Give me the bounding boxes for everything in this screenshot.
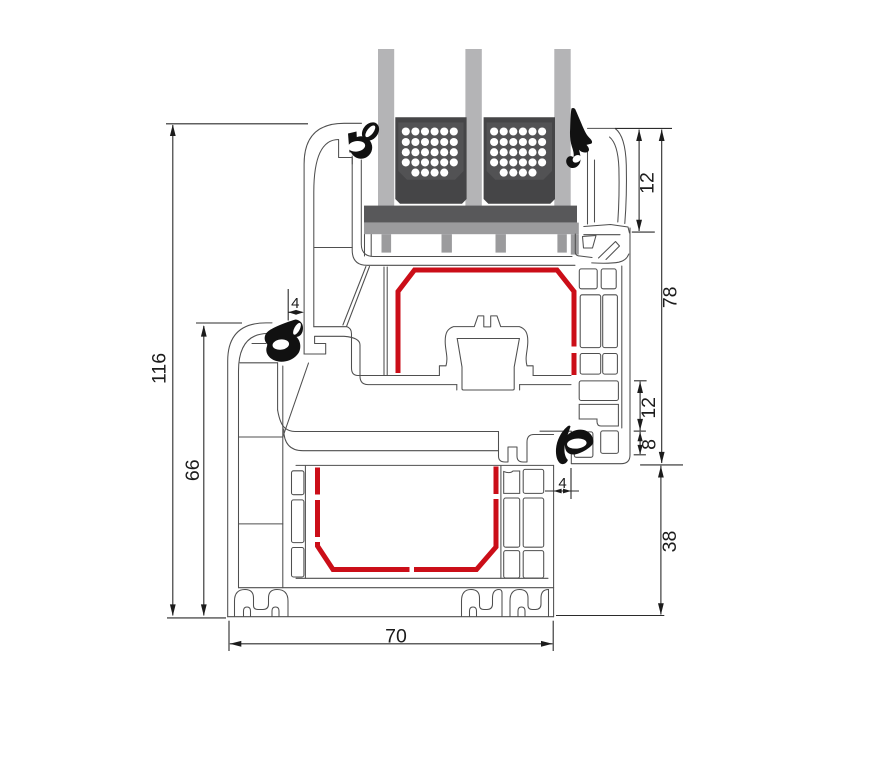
svg-text:66: 66 (182, 459, 204, 481)
svg-text:4: 4 (558, 475, 566, 492)
svg-text:4: 4 (291, 295, 299, 312)
svg-text:12: 12 (637, 172, 659, 194)
svg-text:12: 12 (638, 397, 660, 419)
svg-text:78: 78 (659, 286, 681, 308)
svg-text:116: 116 (149, 353, 171, 384)
svg-text:8: 8 (638, 439, 660, 450)
svg-text:70: 70 (385, 626, 407, 648)
svg-text:38: 38 (659, 531, 681, 553)
